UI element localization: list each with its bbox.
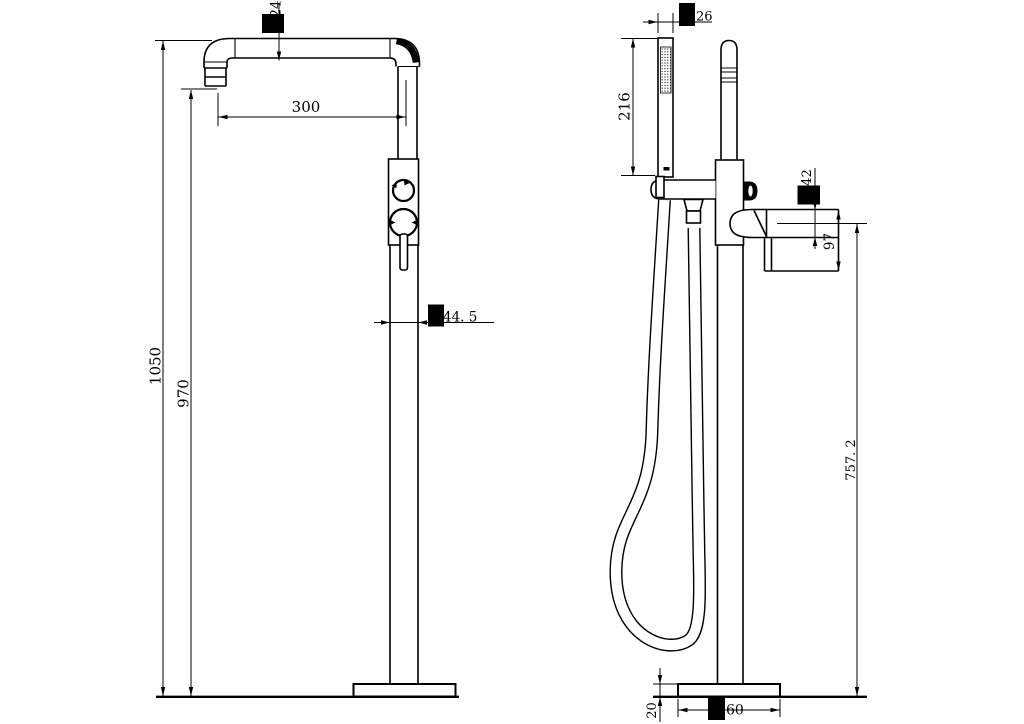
dim-text-base-diameter: 60	[726, 703, 744, 719]
arrowhead	[161, 687, 165, 696]
arrowhead	[219, 115, 228, 119]
dim-text-spout-height: 757. 2	[844, 439, 859, 480]
redaction-box	[428, 305, 444, 327]
arrowhead	[631, 39, 635, 48]
dim-text-base-thickness: 20	[645, 702, 660, 719]
base-plate-side	[678, 684, 780, 697]
dim-text-hand-shower-diameter: 26	[696, 10, 713, 25]
arrowhead	[813, 237, 817, 246]
dim-text-spout-reach: 300	[292, 98, 321, 116]
arrowhead	[397, 115, 406, 119]
dim-text-spout-tube-diameter: 24	[269, 0, 285, 17]
dim-text-column-diameter: 44. 5	[443, 310, 477, 326]
dim-text-overall-height: 1050	[147, 347, 165, 385]
arrowhead	[649, 20, 658, 24]
arrowhead	[189, 90, 193, 99]
side-view: 26 216 42 97 757. 2 20 60	[616, 3, 868, 722]
riser-pipe	[721, 41, 737, 161]
technical-drawing-page: 1050 970 300 24 44. 5	[0, 0, 1024, 724]
arrowhead	[418, 320, 427, 324]
arrowhead	[836, 211, 840, 220]
redaction-box	[708, 698, 725, 720]
arrowhead	[189, 687, 193, 696]
arrowhead	[631, 167, 635, 176]
spout-arch-inner	[227, 58, 396, 68]
dim-text-spout-drop: 97	[822, 233, 838, 250]
dimension-drawing: 1050 970 300 24 44. 5	[0, 0, 1024, 724]
arrowhead	[836, 262, 840, 271]
floor-column-side	[718, 245, 744, 684]
hand-shower-spray-face	[661, 47, 672, 93]
riser-tube	[398, 67, 417, 160]
handle-lever	[400, 234, 408, 270]
spout-outlet-aerator	[204, 68, 227, 86]
redaction-box	[798, 186, 821, 205]
front-view: 1050 970 300 24 44. 5	[147, 0, 495, 696]
spout-back-bullet	[730, 210, 753, 238]
redaction-box	[679, 3, 695, 26]
arrowhead	[855, 687, 859, 696]
dim-text-spout-outlet-height: 970	[175, 379, 193, 408]
arch-segment-lines	[204, 39, 420, 67]
arrowhead	[381, 320, 390, 324]
floor-column	[390, 245, 418, 684]
arrowhead	[679, 708, 688, 712]
hose-nut	[687, 211, 701, 223]
arrowhead	[161, 41, 165, 50]
side-handle-slot	[748, 186, 752, 197]
hand-shower-clip	[656, 177, 664, 198]
base-plate	[354, 684, 456, 697]
arrowhead	[277, 52, 281, 61]
spout-arch-outer	[204, 39, 420, 69]
dim-text-spout-diameter: 42	[800, 169, 815, 186]
arrowhead	[658, 675, 662, 684]
dim-text-hand-shower-length: 216	[616, 92, 634, 121]
hand-shower-label-mark	[664, 167, 670, 171]
arrowhead	[771, 708, 780, 712]
hose-outlet-fitting	[684, 200, 703, 212]
arrowhead	[855, 224, 859, 233]
